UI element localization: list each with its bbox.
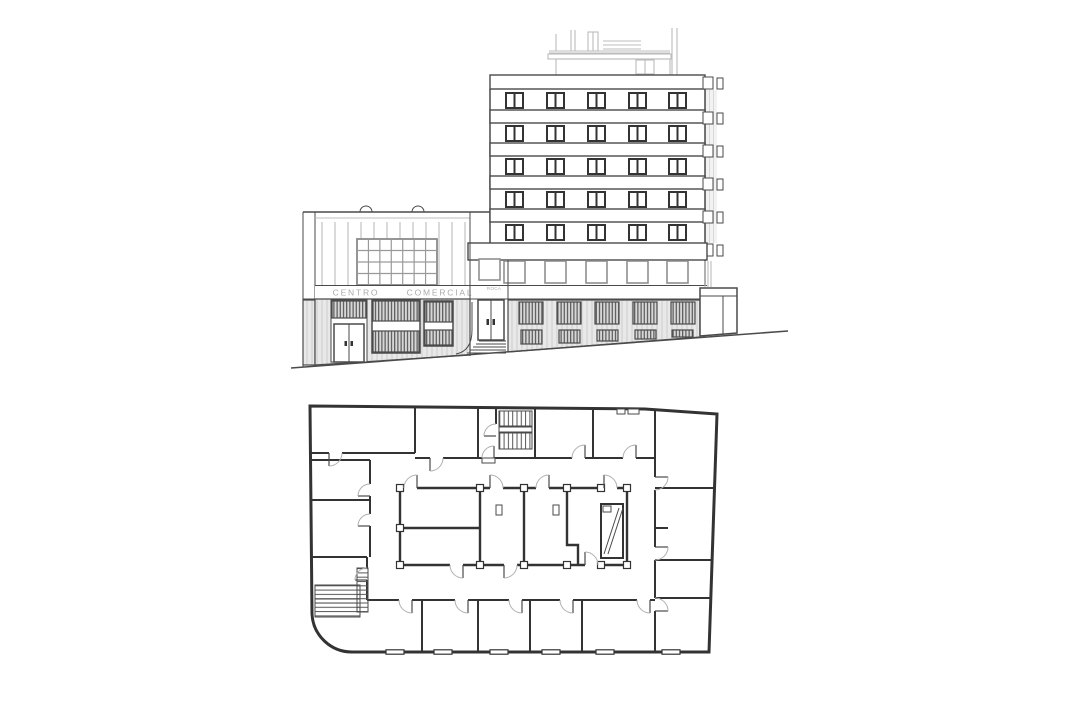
sign-text-comercial: COMERCIAL (407, 288, 474, 298)
tower (468, 75, 723, 299)
architectural-drawing-sheet: CENTRO COMERCIAL ROCA (0, 0, 1081, 720)
tower-cornice (490, 75, 705, 89)
storefront-2 (372, 300, 420, 353)
corner-pier (700, 261, 737, 336)
storefront-shutter (373, 301, 419, 321)
storefront-shutter (425, 302, 452, 322)
roof-slab (548, 54, 671, 59)
storefront-shutter (332, 301, 366, 318)
canopy (468, 243, 707, 260)
top-wall-notch (617, 409, 625, 414)
left-pier-hatch (303, 300, 315, 365)
storefront-shutter (425, 330, 452, 345)
stair-porch (482, 458, 495, 463)
duct-marker (496, 505, 502, 515)
drawing-svg: CENTRO COMERCIAL ROCA (0, 0, 1081, 720)
sign-text-centro: CENTRO (333, 288, 380, 298)
storefront-3 (424, 301, 453, 346)
stair-bulkhead (556, 59, 670, 76)
entrance-bay-window (479, 259, 500, 280)
storefront-shutter (373, 331, 419, 352)
sign-band: CENTRO COMERCIAL ROCA (303, 286, 707, 300)
roof-vent (412, 206, 424, 212)
service-shaft (357, 568, 368, 612)
entrance-sign-text: ROCA (487, 286, 501, 291)
duct-marker (553, 505, 559, 515)
top-wall-notch (628, 409, 639, 414)
tower-first-floor-windows (504, 261, 688, 283)
storefront-1 (331, 300, 367, 362)
building-elevation-drawing: CENTRO COMERCIAL ROCA (291, 28, 788, 368)
roof-vent (360, 206, 372, 212)
floor-plan-drawing (310, 406, 717, 654)
rooftop-structures (548, 28, 677, 76)
